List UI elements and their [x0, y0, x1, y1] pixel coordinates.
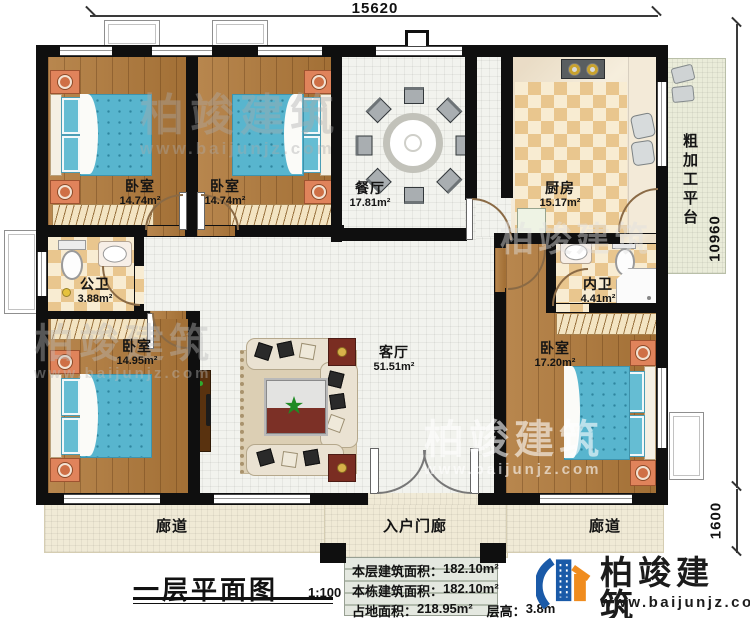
table-center: [404, 134, 422, 152]
bed-pillow: [62, 379, 80, 415]
dim-top-value: 15620: [320, 0, 430, 17]
room-label-bedroom-br: 卧室 17.20m²: [495, 340, 615, 370]
building-logo-icon: [536, 552, 594, 614]
bed-pillow: [302, 98, 320, 134]
sofa-pillow: [277, 341, 295, 359]
title-rule: [133, 597, 333, 600]
wardrobe: [50, 318, 150, 340]
nightstand: [630, 340, 656, 366]
wall-bed2-dining: [331, 45, 342, 242]
bed-pillow: [62, 136, 80, 172]
burner: [568, 63, 581, 76]
window: [214, 494, 310, 504]
plan-scale: 1:100: [308, 585, 341, 600]
bay-window-outline: [104, 20, 160, 48]
toilet-tank: [58, 240, 86, 250]
dining-chair: [356, 136, 373, 156]
window: [540, 494, 632, 504]
room-label-kitchen: 厨房 15.17m²: [500, 180, 620, 210]
door-opening: [495, 248, 505, 292]
window: [64, 494, 160, 504]
dim-line-right-lower: [736, 489, 738, 553]
dining-table: [383, 113, 443, 173]
nightstand: [50, 350, 80, 374]
room-label-bedroom-tm: 卧室 14.74m²: [165, 178, 285, 208]
bed-bedroom-tm: [232, 94, 332, 174]
wall-bedrooms-bottom: [36, 225, 344, 237]
bed-bedroom-bl: [50, 374, 150, 456]
room-label-entrance-porch: 入户门廊: [345, 518, 485, 536]
stove: [561, 59, 605, 79]
sofa-pillow: [299, 343, 316, 360]
sink-basin: [630, 112, 657, 140]
brand-website: www.baijunjz.com: [600, 594, 750, 611]
window: [657, 82, 667, 166]
porch-column: [480, 543, 506, 563]
bed-pillow: [62, 418, 80, 454]
sofa-pillow: [303, 449, 320, 466]
bed-headboard: [50, 374, 62, 458]
stat-building-area: 本栋建筑面积：182.10m²: [352, 581, 499, 600]
kitchen-sink: [630, 112, 656, 168]
dining-chair: [404, 87, 424, 104]
room-label-corridor-right: 廊道: [545, 518, 665, 536]
stat-floor-area: 本层建筑面积：182.10m²: [352, 561, 499, 580]
dim-right-lower-value: 1600: [708, 481, 725, 561]
room-label-public-bath: 公卫 3.88m²: [45, 276, 145, 306]
entrance-opening: [368, 493, 478, 505]
window: [376, 46, 462, 56]
room-label-bedroom-bl: 卧室 14.95m²: [77, 338, 197, 368]
room-label-living: 客厅 51.51m²: [334, 344, 454, 374]
room-label-corridor-left: 廊道: [112, 518, 232, 536]
sofa-pillow: [281, 451, 298, 468]
dim-right-upper-value: 10960: [707, 184, 724, 294]
wall-dining-passage: [465, 45, 477, 200]
bed-blanket: [564, 366, 580, 458]
stat-footprint-height: 占地面积：218.95m² 层高：3.8m: [352, 601, 555, 618]
bed-bedroom-tl: [50, 94, 150, 174]
ac-platform-left: [4, 230, 39, 314]
nightstand: [50, 458, 80, 482]
window: [258, 46, 322, 56]
end-table-knob: [337, 463, 347, 473]
nightstand: [304, 70, 334, 94]
plan-title: 一层平面图: [133, 570, 278, 607]
brand-logo-icon: [536, 552, 594, 614]
nightstand: [50, 180, 80, 204]
sink-basin: [630, 140, 655, 167]
room-label-platform: 粗加工平台: [680, 100, 698, 260]
bed-blanket: [284, 94, 302, 174]
room-label-dining: 餐厅 17.81m²: [310, 180, 430, 210]
wardrobe: [556, 313, 658, 335]
title-rule: [133, 603, 333, 604]
sofa-pillow: [329, 393, 346, 410]
wall-top: [36, 45, 668, 57]
nightstand: [630, 460, 656, 486]
bed-headboard: [50, 94, 62, 176]
window: [657, 368, 667, 448]
room-label-inner-bath: 内卫 4.41m²: [546, 276, 650, 306]
ac-platform-right: [669, 412, 704, 480]
bed-pillow: [302, 136, 320, 172]
bed-pillow: [62, 98, 80, 134]
door-opening: [620, 234, 656, 243]
window: [152, 46, 212, 56]
burner: [586, 63, 599, 76]
end-table: [328, 454, 356, 482]
tv: [206, 394, 211, 426]
wash-basin: [98, 241, 132, 267]
floor-plan-canvas: 15620 10960 1600: [0, 0, 750, 618]
fridge: [517, 208, 546, 236]
dim-line-right-upper: [736, 24, 738, 488]
bay-window-outline: [212, 20, 268, 48]
window: [60, 46, 112, 56]
wall-dining-living: [340, 228, 467, 241]
wall-passage-kitchen: [501, 45, 513, 198]
porch-column: [320, 543, 346, 563]
bed-headboard: [644, 366, 656, 460]
nightstand: [50, 70, 80, 94]
bed-bedroom-br: [564, 366, 656, 458]
